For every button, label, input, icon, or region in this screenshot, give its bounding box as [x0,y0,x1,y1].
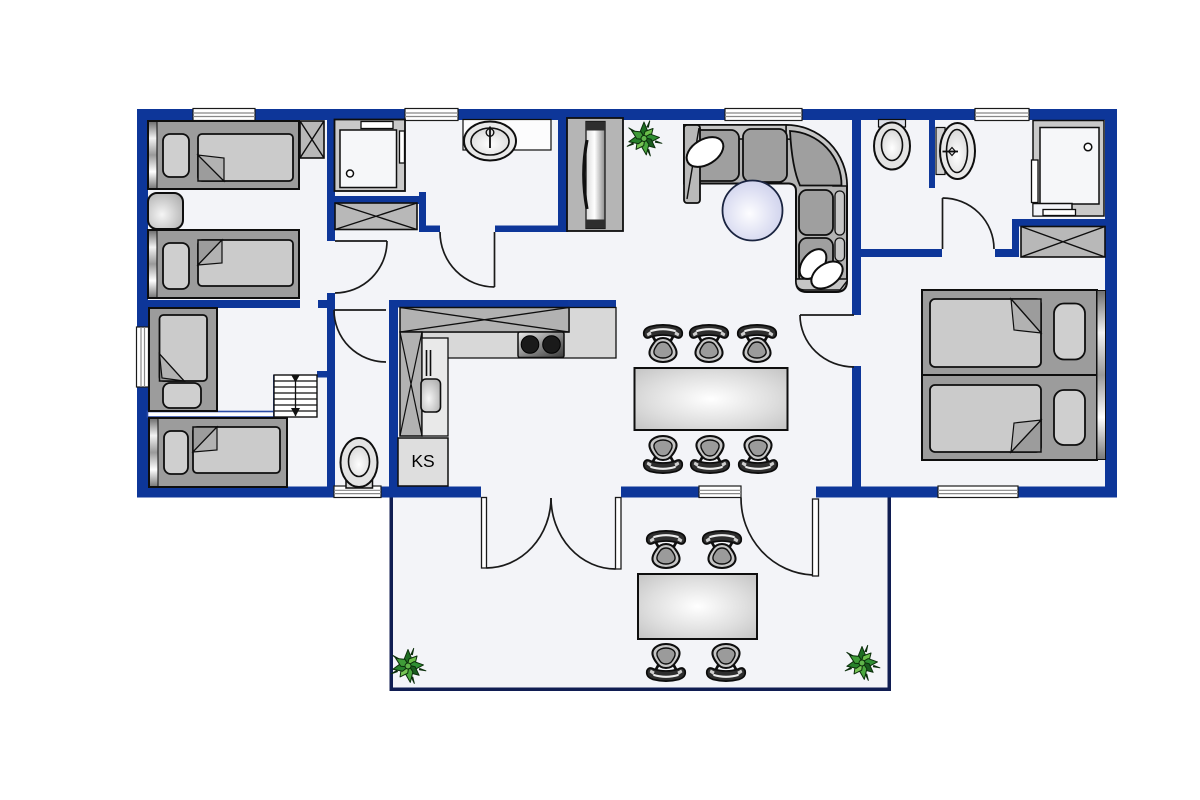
svg-text:KS: KS [411,451,434,471]
